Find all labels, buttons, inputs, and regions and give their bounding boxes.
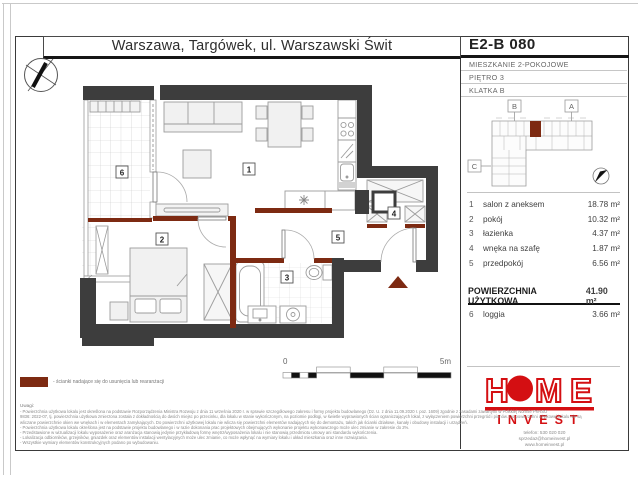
room-name: wnęka na szafę (483, 244, 540, 253)
svg-text:4: 4 (392, 210, 397, 219)
usable-area-summary: POWIERZCHNIA UŻYTKOWA 41.90 m² (468, 288, 620, 305)
room-area: 1.87 m² (592, 244, 620, 253)
unit-staircase: KLATKA B (461, 84, 627, 97)
room-area: 3.66 m² (592, 310, 620, 319)
svg-text:1: 1 (247, 166, 252, 175)
loggia-row: 6 loggia 3.66 m² (461, 307, 628, 322)
compass-icon (20, 54, 64, 96)
svg-text:5: 5 (336, 234, 341, 243)
room-tag-wneka: 4 (388, 207, 400, 219)
building-locator-map: B A C (464, 98, 624, 190)
room-tag-lazienka: 3 (281, 271, 293, 283)
room-name: salon z aneksem (483, 200, 544, 209)
notes-block: Uwagi: - Powierzchnia użytkowa lokalu je… (20, 403, 620, 446)
room-name: pokój (483, 215, 503, 224)
room-row-5: 5 przedpokój 6.56 m² (461, 256, 628, 271)
room-area: 18.78 m² (588, 200, 620, 209)
scale-end-label: 5m (440, 357, 451, 366)
dining-set (256, 102, 313, 147)
unit-floor: PIĘTRO 3 (461, 71, 627, 84)
nightstand (110, 302, 128, 320)
room-tag-salon: 1 (243, 163, 255, 175)
room-tag-loggia: 6 (116, 166, 128, 178)
bathroom-sink (248, 306, 276, 323)
hood-light-icon (299, 195, 309, 205)
room-area: 4.37 m² (592, 229, 620, 238)
washing-machine-icon (280, 306, 306, 323)
unit-type: MIESZKANIE 2-POKOJOWE (461, 58, 627, 71)
loggia-bench (90, 101, 140, 112)
room-number: 4 (469, 244, 478, 253)
tv-sideboard (156, 204, 228, 216)
floorplan-sheet: { "header": { "title": "Warszawa, Targów… (0, 0, 640, 480)
usable-area-label: POWIERZCHNIA UŻYTKOWA (468, 286, 586, 306)
room-name: przedpokój (483, 259, 523, 268)
logo-o-circle-icon (507, 376, 533, 402)
divider-above-logo (467, 366, 620, 367)
section-c-label: C (472, 162, 478, 171)
scale-bar: 0 5m (277, 354, 459, 382)
room-number: 1 (469, 200, 478, 209)
coffee-table (183, 150, 211, 178)
floor-plan: 1 2 3 4 5 6 (80, 78, 442, 364)
page-edge-line-left2 (10, 3, 11, 475)
note-line: 9836: 2022-07, tj. powierzchnia użytkowa… (20, 414, 620, 419)
svg-text:3: 3 (285, 274, 290, 283)
kitchen-counter (338, 100, 356, 190)
legend: - ścianki nadające się do usunięcia lub … (20, 377, 164, 387)
room-number: 5 (469, 259, 478, 268)
building-outline (492, 121, 592, 186)
svg-text:2: 2 (160, 236, 165, 245)
sofa (164, 102, 242, 132)
page-edge-line-left (3, 3, 4, 475)
bed (130, 248, 187, 322)
page-title: Warszawa, Targówek, ul. Warszawski Świt (43, 36, 461, 59)
svg-text:6: 6 (120, 169, 125, 178)
locator-compass-icon (593, 168, 609, 184)
section-a-label: A (569, 102, 574, 111)
bedroom-wardrobe (204, 264, 232, 320)
toilet-icon (306, 265, 332, 280)
page-edge-line-top (2, 3, 638, 4)
kitchen-island (285, 191, 355, 210)
room-tag-przedpokoj: 5 (332, 231, 344, 243)
legend-text: - ścianki nadające się do usunięcia lub … (53, 379, 164, 385)
room-area: 6.56 m² (592, 259, 620, 268)
room-row-1: 1 salon z aneksem 18.78 m² (461, 197, 628, 212)
notes-heading: Uwagi: (20, 403, 620, 408)
room-number: 2 (469, 215, 478, 224)
room-row-4: 4 wnęka na szafę 1.87 m² (461, 241, 628, 256)
section-b-label: B (512, 102, 517, 111)
room-area: 10.32 m² (588, 215, 620, 224)
usable-area-value: 41.90 m² (586, 286, 620, 306)
room-row-3: 3 łazienka 4.37 m² (461, 227, 628, 242)
note-line: - Wszystkie wymiary elementów konstrukcy… (20, 440, 620, 445)
room-list: 1 salon z aneksem 18.78 m² 2 pokój 10.32… (461, 197, 628, 271)
room-number: 3 (469, 229, 478, 238)
removable-wall-swatch (20, 377, 48, 387)
room-number: 6 (469, 310, 478, 319)
room-tag-pokoj: 2 (156, 233, 168, 245)
divider-above-room-list (467, 192, 620, 193)
entrance-arrow-icon (388, 276, 408, 288)
room-name: łazienka (483, 229, 513, 238)
highlighted-unit (530, 121, 541, 137)
scale-start-label: 0 (283, 357, 288, 366)
unit-id: E2-B 080 (461, 36, 629, 58)
loggia-floor (88, 100, 150, 218)
room-row-2: 2 pokój 10.32 m² (461, 212, 628, 227)
room-name: loggia (483, 310, 505, 319)
